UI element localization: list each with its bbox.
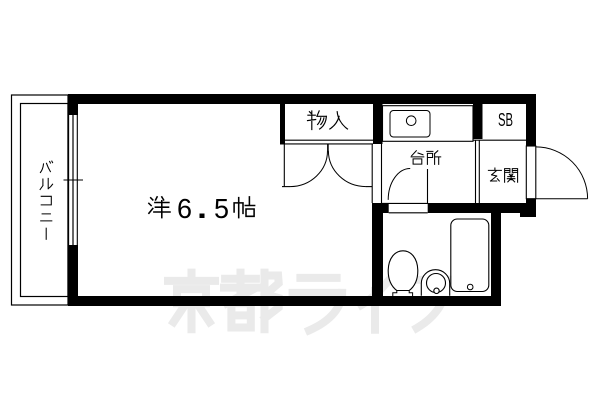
svg-text:SB: SB [498,110,513,130]
svg-text:6: 6 [177,193,192,224]
svg-text:5: 5 [214,193,229,224]
